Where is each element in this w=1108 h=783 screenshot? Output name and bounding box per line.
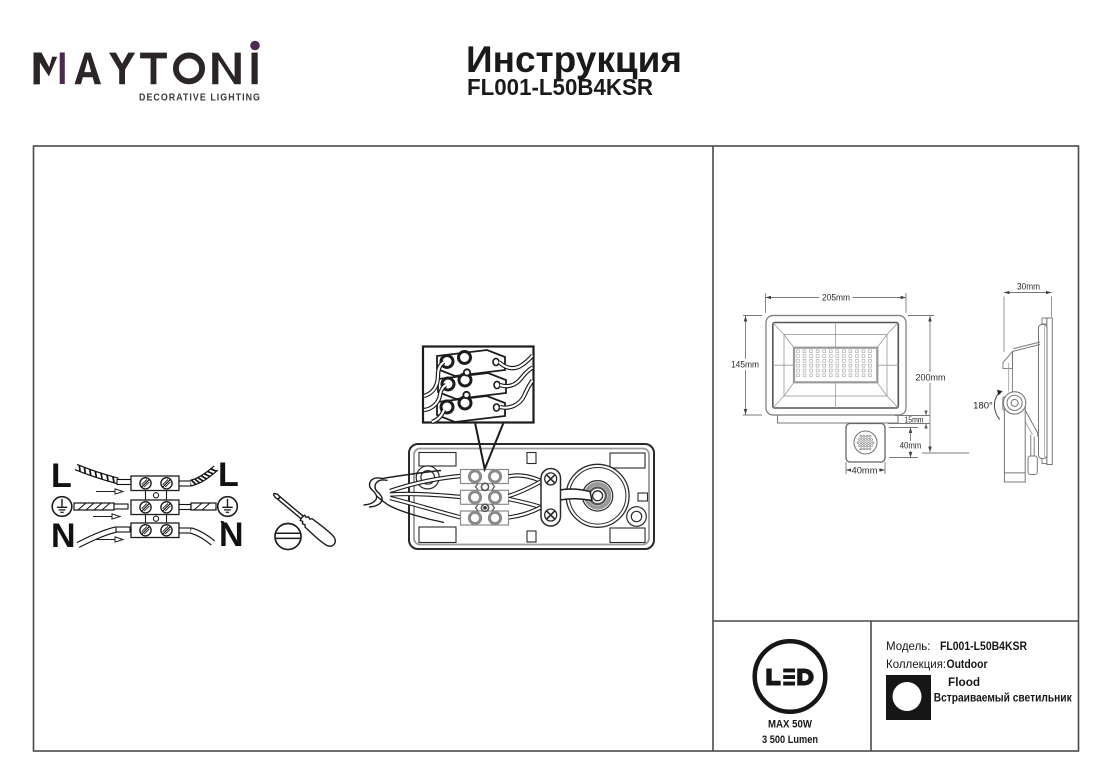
- svg-text:3 500 Lumen: 3 500 Lumen: [762, 734, 818, 746]
- svg-text:N: N: [51, 517, 76, 555]
- svg-text:Коллекция:: Коллекция:: [886, 659, 946, 671]
- svg-text:Flood: Flood: [948, 675, 980, 689]
- svg-text:L: L: [218, 456, 239, 494]
- svg-text:FL001-L50B4KSR: FL001-L50B4KSR: [467, 74, 653, 100]
- svg-text:Встраиваемый светильник: Встраиваемый светильник: [934, 691, 1072, 705]
- svg-text:Модель:: Модель:: [886, 641, 930, 653]
- svg-text:180°: 180°: [973, 401, 993, 412]
- svg-text:200mm: 200mm: [916, 373, 946, 383]
- svg-text:Outdoor: Outdoor: [947, 657, 988, 671]
- svg-text:40mm: 40mm: [900, 441, 922, 451]
- svg-text:205mm: 205mm: [822, 293, 850, 303]
- svg-text:FL001-L50B4KSR: FL001-L50B4KSR: [940, 639, 1027, 653]
- svg-text:L: L: [51, 457, 72, 495]
- svg-text:MAX 50W: MAX 50W: [768, 719, 812, 731]
- svg-text:30mm: 30mm: [1017, 282, 1040, 292]
- svg-text:DECORATIVE LIGHTING: DECORATIVE LIGHTING: [139, 92, 261, 103]
- svg-text:15mm: 15mm: [905, 416, 924, 425]
- svg-text:145mm: 145mm: [731, 360, 759, 370]
- svg-text:40mm: 40mm: [852, 466, 878, 476]
